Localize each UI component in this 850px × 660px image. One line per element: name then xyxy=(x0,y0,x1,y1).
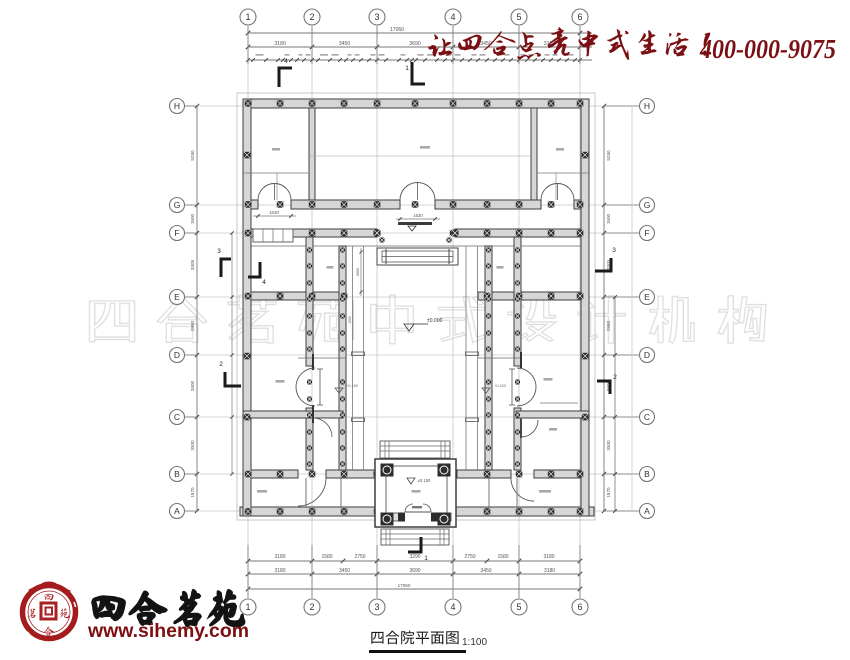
svg-text:3305: 3305 xyxy=(190,259,195,270)
svg-text:±0.150: ±0.150 xyxy=(418,478,431,483)
svg-text:+0.150: +0.150 xyxy=(346,384,358,388)
svg-text:1: 1 xyxy=(405,65,409,72)
svg-text:1:100: 1:100 xyxy=(462,637,487,648)
svg-text:B: B xyxy=(174,469,180,479)
svg-text:5280: 5280 xyxy=(606,150,611,161)
svg-text:3: 3 xyxy=(374,602,379,612)
svg-text:3300: 3300 xyxy=(190,380,195,391)
svg-text:1: 1 xyxy=(424,555,428,562)
svg-text:5: 5 xyxy=(516,602,521,612)
svg-text:2750: 2750 xyxy=(354,554,365,560)
svg-text:1870: 1870 xyxy=(190,487,195,498)
svg-text:F: F xyxy=(174,228,179,238)
svg-text:3180: 3180 xyxy=(544,568,555,574)
svg-text:4: 4 xyxy=(450,12,455,22)
svg-text:G: G xyxy=(644,200,651,210)
svg-text:1500: 1500 xyxy=(606,213,611,224)
svg-text:6: 6 xyxy=(577,602,582,612)
svg-text:2980: 2980 xyxy=(190,320,195,331)
svg-text:1630: 1630 xyxy=(413,213,423,218)
svg-text:2980: 2980 xyxy=(606,320,611,331)
svg-text:1500: 1500 xyxy=(190,213,195,224)
svg-text:4: 4 xyxy=(262,279,266,286)
svg-text:1: 1 xyxy=(245,602,250,612)
svg-text:1870: 1870 xyxy=(606,487,611,498)
svg-text:3690: 3690 xyxy=(409,568,420,574)
svg-text:E: E xyxy=(644,292,650,302)
svg-text:2: 2 xyxy=(219,361,223,368)
svg-text:3290: 3290 xyxy=(409,554,420,560)
svg-text:C: C xyxy=(644,412,650,422)
svg-text:3450: 3450 xyxy=(480,568,491,574)
svg-text:5: 5 xyxy=(516,12,521,22)
svg-text:3180: 3180 xyxy=(274,41,286,47)
svg-text:3: 3 xyxy=(612,247,616,254)
svg-text:E: E xyxy=(174,292,180,302)
svg-text:2: 2 xyxy=(309,12,314,22)
svg-text:3690: 3690 xyxy=(409,41,421,47)
svg-text:A: A xyxy=(174,506,180,516)
svg-text:2: 2 xyxy=(309,602,314,612)
svg-text:www.sihemy.com: www.sihemy.com xyxy=(87,620,249,642)
svg-text:2: 2 xyxy=(613,374,617,381)
svg-text:6: 6 xyxy=(577,12,582,22)
svg-text:B: B xyxy=(644,469,650,479)
svg-text:D: D xyxy=(174,350,180,360)
svg-text:1500: 1500 xyxy=(348,316,352,324)
svg-text:3000: 3000 xyxy=(356,268,360,276)
svg-text:1580: 1580 xyxy=(497,554,508,560)
svg-text:1580: 1580 xyxy=(321,554,332,560)
svg-text:3450: 3450 xyxy=(339,41,351,47)
svg-text:F: F xyxy=(644,228,649,238)
svg-text:17060: 17060 xyxy=(398,583,411,588)
svg-text:H: H xyxy=(644,101,650,111)
svg-text:1630: 1630 xyxy=(269,210,279,215)
svg-text:C: C xyxy=(174,412,180,422)
svg-text:D: D xyxy=(644,350,650,360)
svg-text:17060: 17060 xyxy=(390,27,404,33)
svg-text:3300: 3300 xyxy=(606,440,611,451)
svg-text:1: 1 xyxy=(245,12,250,22)
svg-text:5280: 5280 xyxy=(190,150,195,161)
svg-text:4: 4 xyxy=(450,602,455,612)
svg-text:G: G xyxy=(174,200,181,210)
svg-text:+0.150: +0.150 xyxy=(494,384,506,388)
svg-text:3: 3 xyxy=(217,248,221,255)
svg-text:3180: 3180 xyxy=(274,568,285,574)
svg-text:400-000-9075: 400-000-9075 xyxy=(699,34,836,64)
svg-text:A: A xyxy=(644,506,650,516)
svg-text:3180: 3180 xyxy=(274,554,285,560)
svg-text:4: 4 xyxy=(284,58,288,65)
svg-text:2750: 2750 xyxy=(464,554,475,560)
svg-text:3300: 3300 xyxy=(190,440,195,451)
svg-text:3: 3 xyxy=(374,12,379,22)
svg-text:±0.000: ±0.000 xyxy=(427,318,442,324)
svg-text:3180: 3180 xyxy=(543,554,554,560)
svg-text:3450: 3450 xyxy=(339,568,350,574)
svg-text:H: H xyxy=(174,101,180,111)
